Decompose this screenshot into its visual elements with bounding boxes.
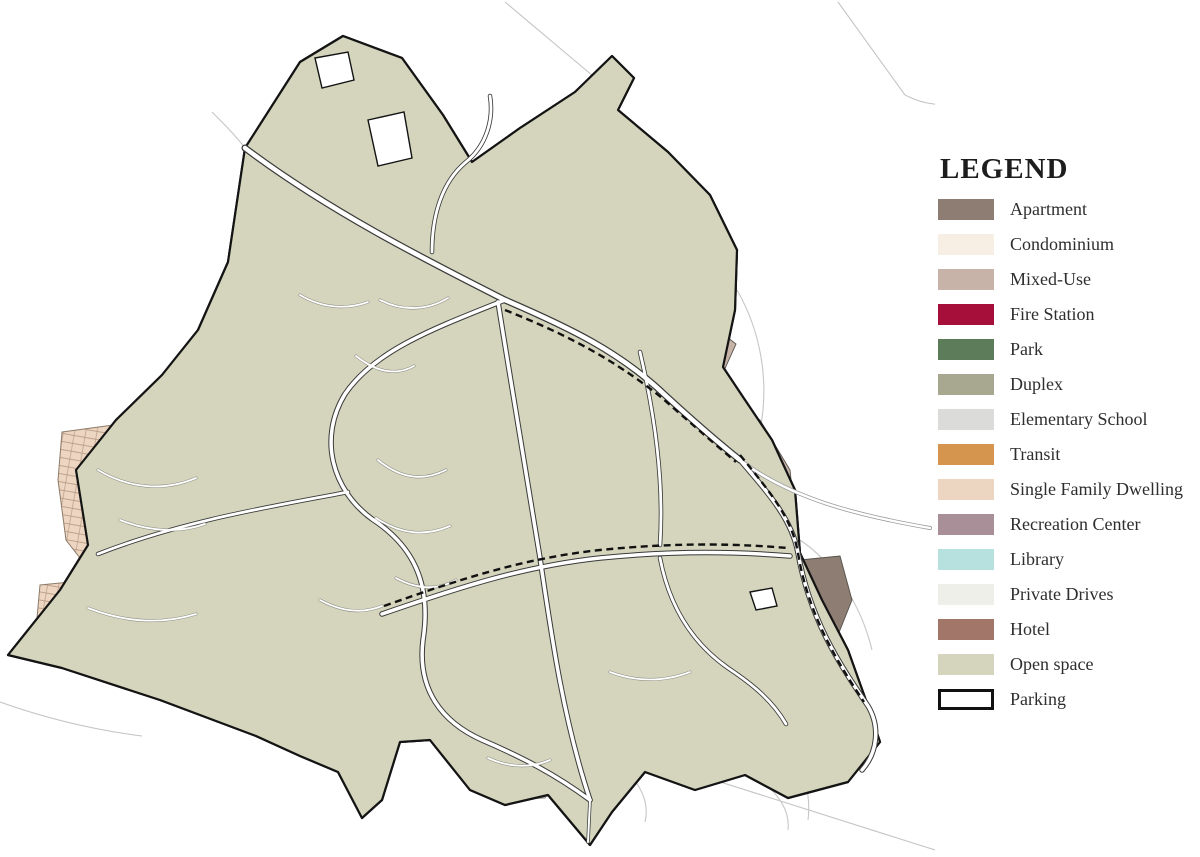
legend-item-library: Library [938,548,1200,570]
legend-item-apartment: Apartment [938,198,1200,220]
single-family-dwelling-swatch [938,479,994,500]
parking-swatch [938,689,994,710]
apartment-swatch [938,199,994,220]
mixed-use-label: Mixed-Use [1010,269,1091,290]
duplex-swatch [938,374,994,395]
legend-item-mixed-use: Mixed-Use [938,268,1200,290]
legend-item-hotel: Hotel [938,618,1200,640]
elementary-school-swatch [938,409,994,430]
legend-item-elementary-school: Elementary School [938,408,1200,430]
legend-item-transit: Transit [938,443,1200,465]
land-use-map [0,0,935,857]
library-swatch [938,549,994,570]
legend-item-private-drives: Private Drives [938,583,1200,605]
private-drives-label: Private Drives [1010,584,1113,605]
hotel-label: Hotel [1010,619,1050,640]
legend-item-park: Park [938,338,1200,360]
mixed-use-swatch [938,269,994,290]
legend-title: LEGEND [940,153,1200,186]
condominium-swatch [938,234,994,255]
legend-item-condominium: Condominium [938,233,1200,255]
open-space-label: Open space [1010,654,1093,675]
condominium-label: Condominium [1010,234,1114,255]
parking-label: Parking [1010,689,1066,710]
single-family-dwelling-label: Single Family Dwelling [1010,479,1183,500]
master-plan-screenshot: LEGEND ApartmentCondominiumMixed-UseFire… [0,0,1200,857]
private-drives-swatch [938,584,994,605]
legend-panel: LEGEND ApartmentCondominiumMixed-UseFire… [938,153,1200,723]
legend-item-single-family-dwelling: Single Family Dwelling [938,478,1200,500]
legend-item-recreation-center: Recreation Center [938,513,1200,535]
legend-items: ApartmentCondominiumMixed-UseFire Statio… [938,198,1200,710]
transit-label: Transit [1010,444,1060,465]
recreation-center-swatch [938,514,994,535]
fire-station-swatch [938,304,994,325]
open-space-swatch [938,654,994,675]
hotel-swatch [938,619,994,640]
duplex-label: Duplex [1010,374,1063,395]
park-swatch [938,339,994,360]
legend-item-parking: Parking [938,688,1200,710]
fire-station-label: Fire Station [1010,304,1095,325]
legend-item-open-space: Open space [938,653,1200,675]
park-label: Park [1010,339,1043,360]
elementary-school-label: Elementary School [1010,409,1147,430]
recreation-center-label: Recreation Center [1010,514,1140,535]
legend-item-duplex: Duplex [938,373,1200,395]
library-label: Library [1010,549,1064,570]
transit-swatch [938,444,994,465]
legend-item-fire-station: Fire Station [938,303,1200,325]
apartment-label: Apartment [1010,199,1087,220]
